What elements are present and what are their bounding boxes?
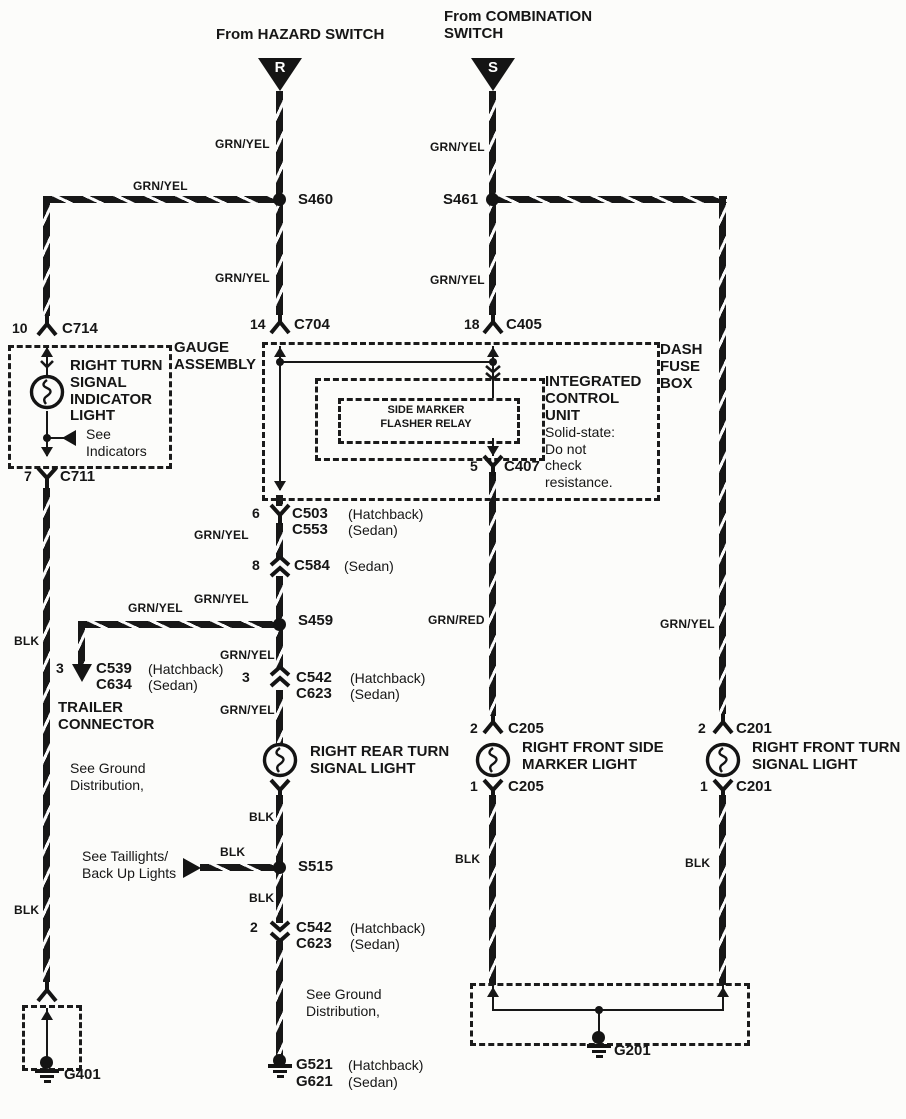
arrowhead-up-g201-left-icon (487, 987, 499, 997)
ground-variant: (Hatchback) (348, 1057, 423, 1073)
connector-name: C205 (508, 778, 544, 795)
wire-color-label: GRN/YEL (220, 648, 275, 662)
connector-name: C205 (508, 720, 544, 737)
side-marker-light-label: RIGHT FRONT SIDE MARKER LIGHT (522, 740, 664, 774)
splice-label-s460: S460 (298, 191, 333, 208)
ground-bar-icon (596, 1055, 603, 1058)
connector-pin: 7 (24, 468, 32, 484)
triangle-r-letter: R (275, 59, 286, 76)
wire-color-label: BLK (14, 634, 39, 648)
wire-front-turn-blk (719, 795, 726, 985)
connector-variant: (Sedan) (350, 686, 400, 702)
ground-bar-icon (35, 1069, 59, 1073)
ground-bar-icon (277, 1075, 284, 1078)
junction-dot-indicator-branch (43, 434, 51, 442)
connector-pin: 2 (250, 919, 258, 935)
wire-color-label: GRN/YEL (194, 528, 249, 542)
connector-symbol-c405-icon (482, 314, 504, 336)
connector-symbol-c201-top-icon (712, 714, 734, 736)
wire-trailer-drop (78, 621, 85, 666)
see-ground-note-left: See Ground Distribution, (70, 760, 146, 793)
connector-name: C407 (504, 458, 540, 475)
source-hazard-switch-label: From HAZARD SWITCH (216, 26, 384, 43)
source-combination-switch-label: From COMBINATION SWITCH (444, 8, 592, 43)
g201-inner-line-h (492, 1009, 724, 1011)
wire-s459-branch-h (78, 621, 284, 628)
bulb-indicator-light-icon (29, 374, 66, 411)
ground-bar-icon (273, 1070, 287, 1073)
wire-marker-blk (489, 795, 496, 985)
bulb-side-marker-light-icon (475, 742, 512, 779)
wire-color-label: GRN/YEL (215, 271, 270, 285)
relay-label: SIDE MARKER FLASHER RELAY (340, 403, 512, 432)
ground-label-g621: G621 (296, 1073, 333, 1090)
arrowhead-down-fusebox-left-icon (274, 481, 286, 491)
wire-s461-branch-h (489, 196, 727, 203)
connector-variant: (Sedan) (350, 936, 400, 952)
rear-turn-light-label: RIGHT REAR TURN SIGNAL LIGHT (310, 744, 449, 778)
ground-variant: (Sedan) (348, 1074, 398, 1090)
icu-note: Solid-state: Do not check resistance. (545, 424, 615, 490)
gauge-assembly-label: GAUGE ASSEMBLY (174, 340, 256, 374)
see-indicators-note: See Indicators (86, 426, 147, 459)
wire-taillights-branch (200, 864, 284, 871)
arrowhead-up-fusebox-left-icon (274, 347, 286, 357)
splice-label-s515: S515 (298, 858, 333, 875)
triangle-connector-r: R (258, 58, 302, 91)
ground-bar-icon (592, 1050, 606, 1053)
wire-color-label: GRN/RED (428, 613, 485, 627)
wire-center-seg2 (276, 523, 283, 559)
connector-variant: (Hatchback) (350, 670, 425, 686)
see-indicators-arrow-icon (62, 430, 76, 446)
front-turn-light-label: RIGHT FRONT TURN SIGNAL LIGHT (752, 740, 900, 774)
wire-color-label: BLK (249, 810, 274, 824)
trailer-connector-arrow-icon (72, 664, 92, 682)
connector-name: C714 (62, 320, 98, 337)
connector-symbol-rear-bulb-out-icon (269, 778, 291, 800)
dash-fuse-box-label: DASH FUSE BOX (660, 342, 703, 392)
wire-color-label: GRN/YEL (430, 140, 485, 154)
connector-symbol-c201-bottom-icon (712, 778, 734, 800)
splice-dot-s461 (486, 193, 499, 206)
connector-pin: 1 (470, 778, 478, 794)
connector-pin: 2 (698, 720, 706, 736)
ground-label-g401: G401 (64, 1066, 101, 1083)
wiring-diagram: From HAZARD SWITCH From COMBINATION SWIT… (0, 0, 906, 1119)
connector-name: C634 (96, 676, 132, 693)
wire-color-label: BLK (685, 856, 710, 870)
connector-name: C405 (506, 316, 542, 333)
connector-name: C542 (296, 669, 332, 686)
connector-pin: 1 (700, 778, 708, 794)
arrowhead-up-g401-icon (41, 1010, 53, 1020)
trailer-connector-label: TRAILER CONNECTOR (58, 700, 154, 734)
connector-symbol-c711-icon (36, 466, 58, 488)
chevron-double-down-icu-icon (484, 364, 502, 381)
connector-pin: 8 (252, 557, 260, 573)
wire-left-blk (43, 488, 50, 982)
ground-bar-icon (40, 1075, 54, 1078)
connector-variant: (Hatchback) (350, 920, 425, 936)
wire-s460-branch-h (43, 196, 284, 203)
indicator-light-label: RIGHT TURN SIGNAL INDICATOR LIGHT (70, 358, 163, 425)
connector-variant: (Hatchback) (148, 661, 223, 677)
splice-dot-s460 (273, 193, 286, 206)
arrowhead-up-fusebox-right-icon (487, 347, 499, 357)
splice-label-s459: S459 (298, 612, 333, 629)
wire-rear-blk-lower (276, 941, 283, 1058)
splice-label-s461: S461 (443, 191, 478, 208)
fusebox-inner-line-left (279, 346, 281, 490)
arrowhead-up-g201-right-icon (717, 987, 729, 997)
connector-name: C584 (294, 557, 330, 574)
triangle-connector-s: S (471, 58, 515, 91)
connector-symbol-c714-icon (36, 316, 58, 338)
wire-color-label: GRN/YEL (430, 273, 485, 287)
connector-pin: 18 (464, 316, 480, 332)
wire-color-label: GRN/YEL (220, 703, 275, 717)
ground-bar-icon (268, 1064, 292, 1068)
wire-color-label: GRN/YEL (215, 137, 270, 151)
wire-right-front-turn (719, 196, 726, 714)
wire-color-label: GRN/YEL (128, 601, 183, 615)
connector-symbol-c542-lower-icon (269, 920, 291, 942)
connector-variant: (Sedan) (344, 558, 394, 574)
triangle-s-letter: S (488, 59, 498, 76)
connector-name: C503 (292, 505, 328, 522)
wire-color-label: BLK (220, 845, 245, 859)
connector-name: C623 (296, 935, 332, 952)
ground-bar-icon (587, 1044, 611, 1048)
wire-color-label: GRN/YEL (194, 592, 249, 606)
wire-rear-blk-upper (276, 795, 283, 923)
wire-center-seg4 (276, 690, 283, 744)
see-ground-note-center: See Ground Distribution, (306, 986, 382, 1019)
junction-dot-c704-inner (276, 358, 284, 366)
connector-name: C711 (60, 468, 95, 485)
connector-symbol-c407-icon (482, 454, 504, 476)
connector-pin: 2 (470, 720, 478, 736)
connector-symbol-c704-icon (269, 314, 291, 336)
wire-color-label: BLK (14, 903, 39, 917)
g201-ground-box (470, 983, 750, 1046)
connector-variant: (Hatchback) (348, 506, 423, 522)
wire-color-label: GRN/YEL (133, 179, 188, 193)
connector-name: C623 (296, 685, 332, 702)
wire-color-label: BLK (249, 891, 274, 905)
ground-dot-g401 (40, 1056, 53, 1069)
wire-color-label: GRN/YEL (660, 617, 715, 631)
connector-variant: (Sedan) (348, 522, 398, 538)
bulb-front-turn-light-icon (705, 742, 742, 779)
wire-color-label: BLK (455, 852, 480, 866)
icu-label: INTEGRATED CONTROL UNIT (545, 374, 641, 424)
connector-name: C542 (296, 919, 332, 936)
connector-pin: 3 (242, 669, 250, 685)
ground-bar-icon (44, 1080, 51, 1083)
connector-name: C553 (292, 521, 328, 538)
connector-pin: 6 (252, 505, 260, 521)
connector-symbol-c503-icon (269, 503, 291, 525)
chevron-down-gauge-icon (39, 359, 55, 370)
ground-dot-g201 (592, 1031, 605, 1044)
splice-dot-s515 (273, 861, 286, 874)
ground-label-g201: G201 (614, 1042, 651, 1059)
wire-to-c714 (43, 196, 50, 316)
connector-variant: (Sedan) (148, 677, 198, 693)
connector-pin: 3 (56, 660, 64, 676)
connector-symbol-c205-top-icon (482, 714, 504, 736)
connector-symbol-c542-upper-icon (269, 666, 291, 688)
see-taillights-note: See Taillights/ Back Up Lights (82, 848, 176, 881)
arrowhead-up-gauge-icon (41, 347, 53, 357)
bulb-rear-turn-light-icon (262, 742, 299, 779)
connector-symbol-c584-icon (269, 556, 291, 578)
connector-pin: 14 (250, 316, 266, 332)
connector-name: C704 (294, 316, 330, 333)
wire-grn-red (489, 472, 496, 716)
connector-symbol-c205-bottom-icon (482, 778, 504, 800)
arrowhead-down-gauge-icon (41, 447, 53, 457)
connector-name: C539 (96, 660, 132, 677)
connector-name: C201 (736, 720, 772, 737)
see-taillights-arrow-icon (183, 858, 201, 878)
connector-name: C201 (736, 778, 772, 795)
connector-symbol-left-ground-icon (36, 982, 58, 1004)
fusebox-inner-line-h (280, 361, 494, 363)
splice-dot-s459 (273, 618, 286, 631)
connector-pin: 10 (12, 320, 28, 336)
ground-label-g521: G521 (296, 1056, 333, 1073)
connector-pin: 5 (470, 458, 478, 474)
junction-dot-g201 (595, 1006, 603, 1014)
